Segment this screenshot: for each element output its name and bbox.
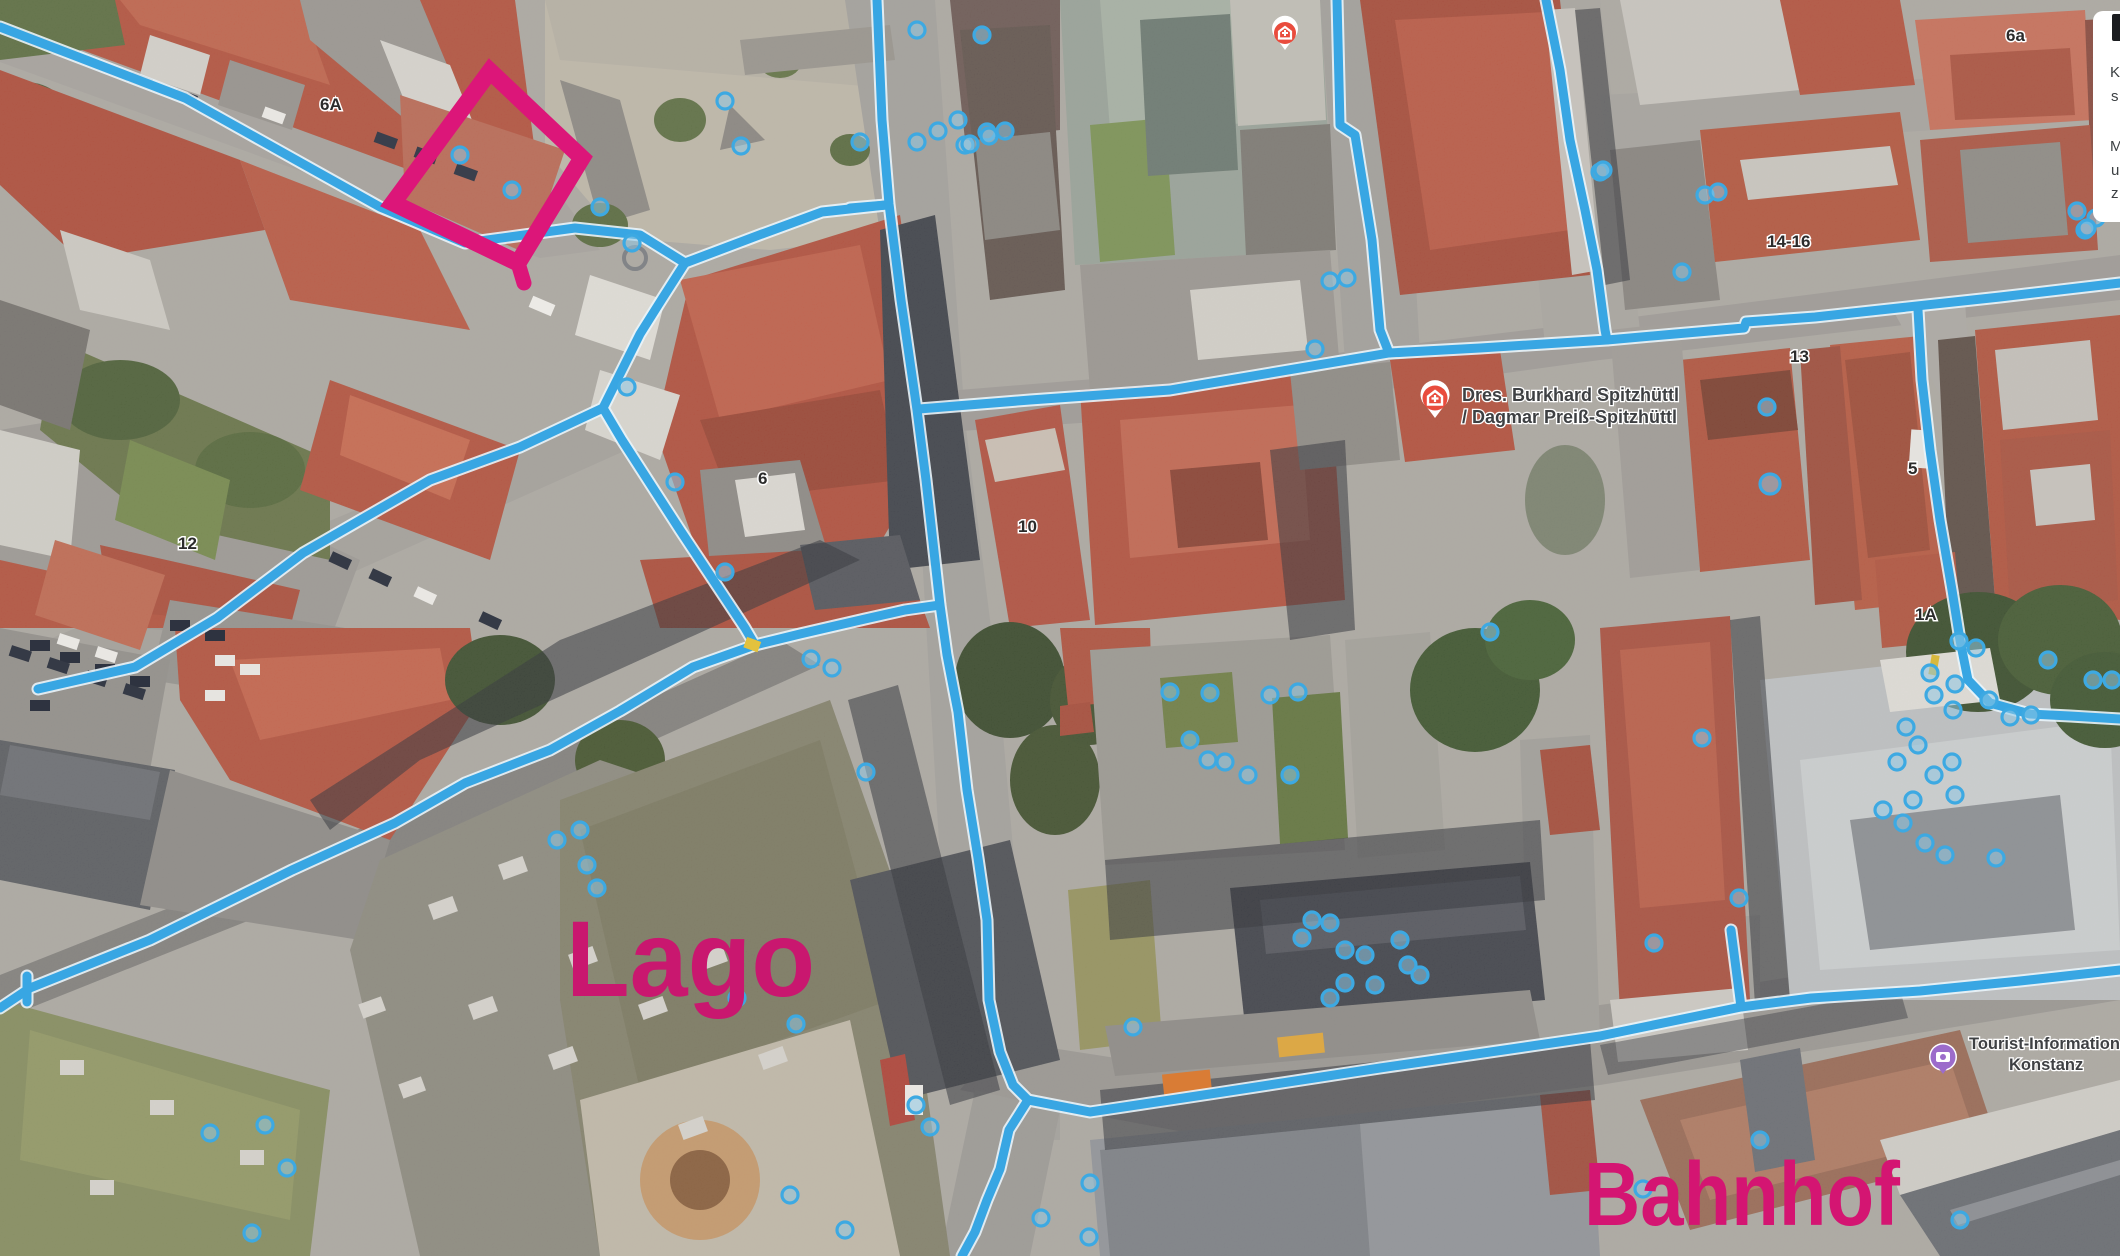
svg-text:5: 5 (1908, 459, 1917, 478)
svg-text:6: 6 (758, 469, 767, 488)
svg-text:14-16: 14-16 (1767, 232, 1810, 251)
svg-text:10: 10 (1018, 517, 1037, 536)
svg-text:K: K (2110, 64, 2120, 81)
svg-text:6a: 6a (2006, 26, 2025, 45)
svg-text:z: z (2111, 185, 2119, 202)
svg-text:6A: 6A (320, 95, 342, 114)
svg-text:12: 12 (178, 534, 197, 553)
svg-text:Lago: Lago (566, 898, 815, 1019)
svg-text:/ Dagmar Preiß-Spitzhüttl: / Dagmar Preiß-Spitzhüttl (1462, 407, 1677, 427)
svg-text:u: u (2111, 162, 2119, 179)
svg-text:Tourist-Information: Tourist-Information (1969, 1035, 2120, 1053)
svg-text:Bahnhof: Bahnhof (1584, 1145, 1901, 1245)
svg-text:M: M (2110, 138, 2120, 155)
svg-text:13: 13 (1790, 347, 1809, 366)
svg-text:Dres. Burkhard Spitzhüttl: Dres. Burkhard Spitzhüttl (1462, 385, 1679, 405)
svg-text:1A: 1A (1915, 605, 1937, 624)
svg-text:Konstanz: Konstanz (2009, 1056, 2083, 1074)
svg-text:s: s (2111, 88, 2119, 105)
